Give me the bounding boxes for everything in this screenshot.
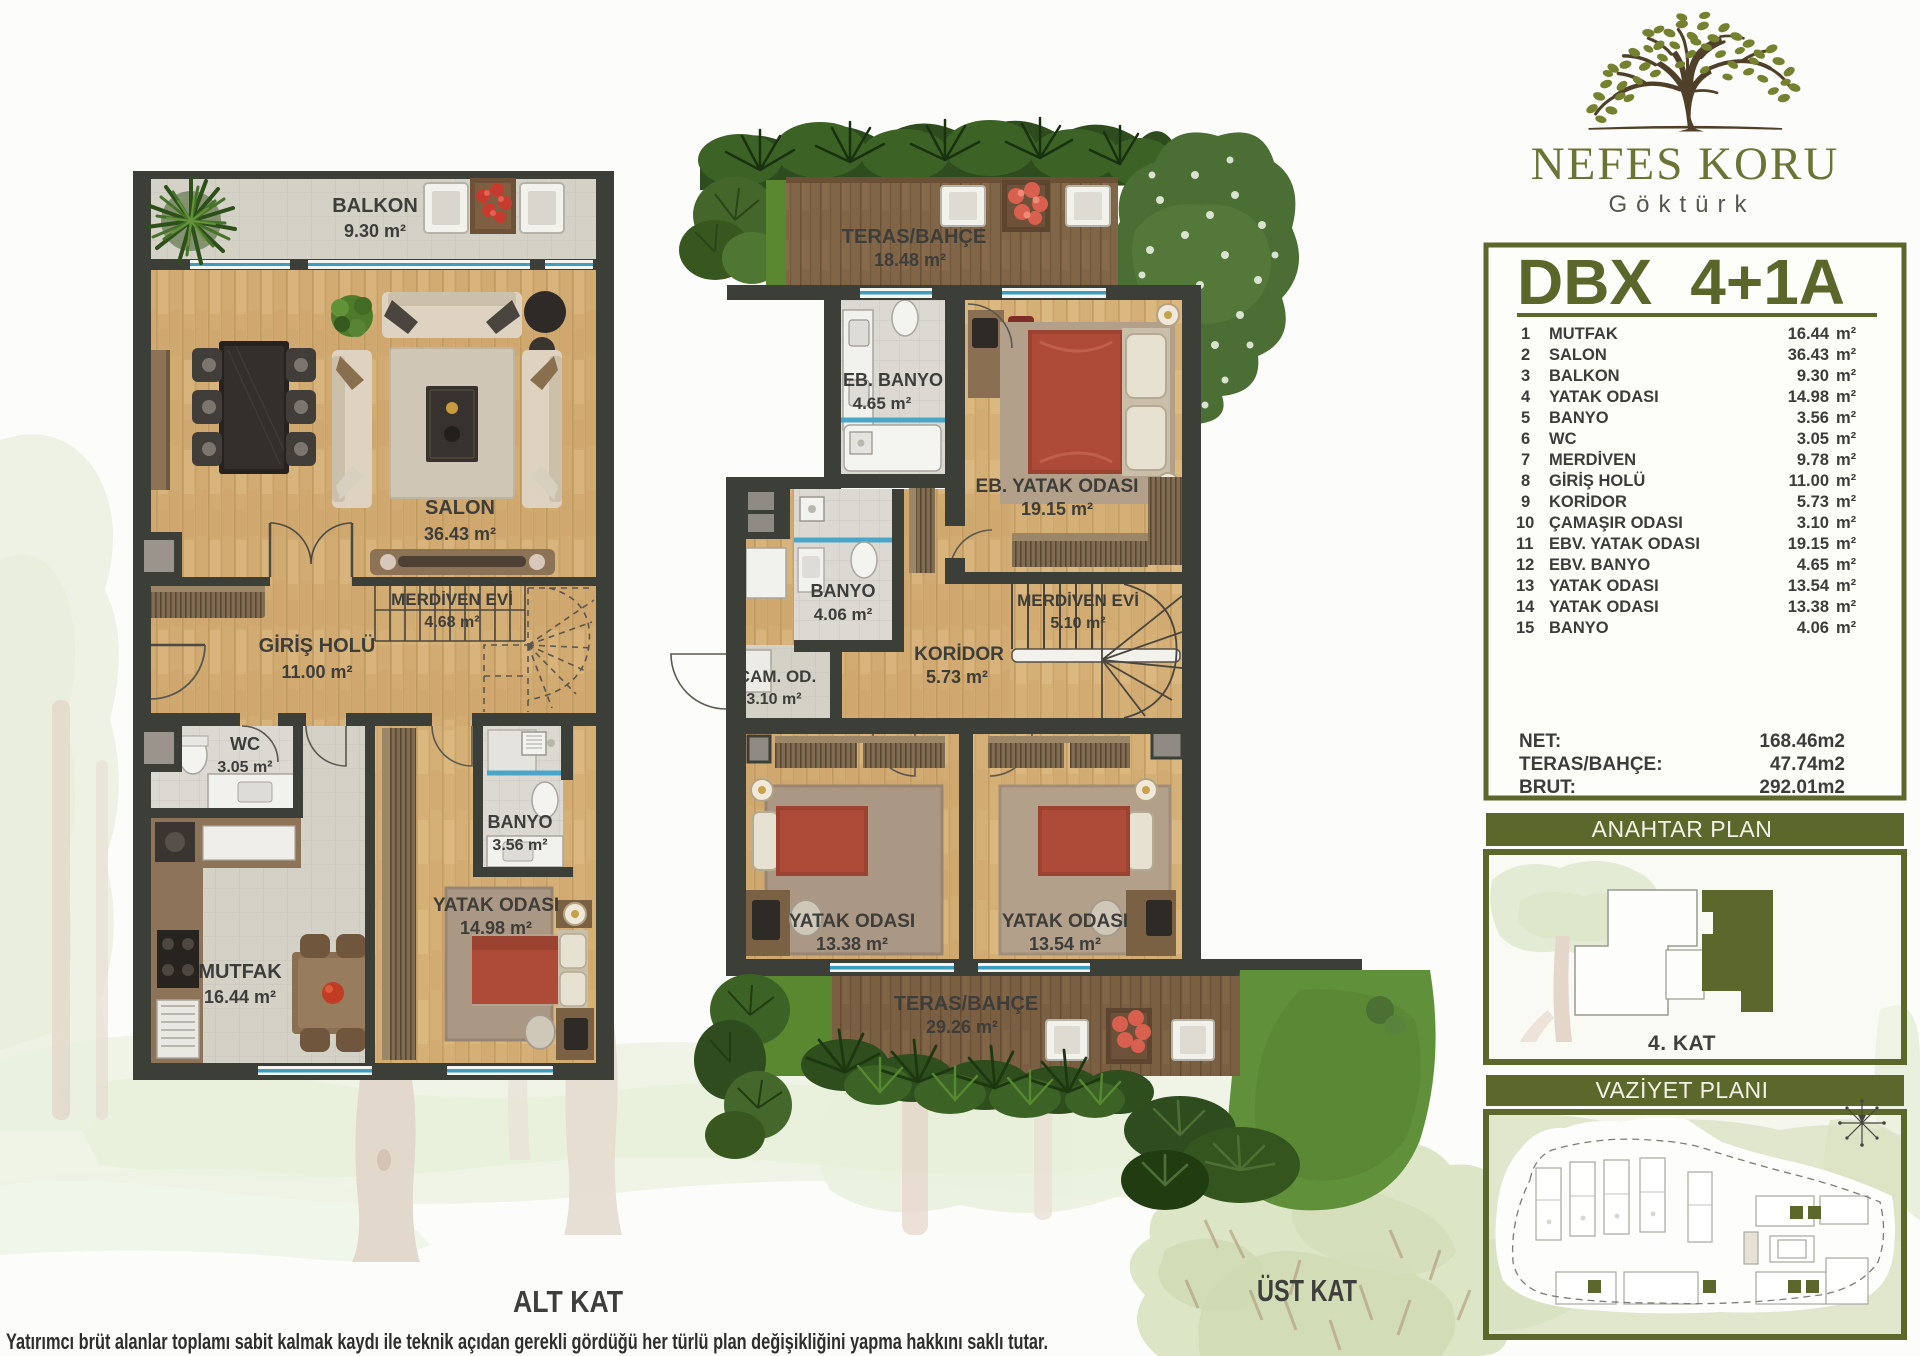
svg-text:ALT KAT: ALT KAT [513, 1284, 623, 1319]
svg-text:4.06 m²: 4.06 m² [814, 605, 873, 624]
svg-text:MUTFAK: MUTFAK [1549, 325, 1618, 343]
svg-text:Yatırımcı brüt alanlar toplamı: Yatırımcı brüt alanlar toplamı sabit kal… [6, 1329, 1048, 1354]
svg-text:YATAK ODASI: YATAK ODASI [433, 895, 559, 916]
svg-text:10: 10 [1516, 514, 1534, 532]
svg-text:SALON: SALON [1549, 346, 1607, 364]
svg-text:m²: m² [1836, 451, 1857, 469]
svg-text:BANYO: BANYO [1549, 409, 1609, 427]
svg-text:3.56 m²: 3.56 m² [492, 837, 547, 854]
svg-text:m²: m² [1836, 577, 1857, 595]
svg-text:YATAK ODASI: YATAK ODASI [1549, 577, 1659, 595]
svg-text:m²: m² [1836, 346, 1857, 364]
svg-text:2: 2 [1521, 346, 1530, 364]
svg-text:36.43 m²: 36.43 m² [424, 524, 496, 544]
svg-text:DBX: DBX [1517, 246, 1652, 318]
svg-text:m²: m² [1836, 367, 1857, 385]
svg-text:VAZİYET PLANI: VAZİYET PLANI [1595, 1077, 1768, 1103]
svg-text:19.15 m²: 19.15 m² [1021, 499, 1093, 519]
svg-text:9.78: 9.78 [1797, 451, 1829, 469]
svg-text:KORİDOR: KORİDOR [1549, 493, 1627, 511]
svg-text:ÇAM. OD.: ÇAM. OD. [738, 667, 816, 686]
svg-text:4.65: 4.65 [1797, 556, 1829, 574]
svg-text:15: 15 [1516, 619, 1534, 637]
svg-text:ANAHTAR PLAN: ANAHTAR PLAN [1592, 816, 1773, 842]
svg-text:11.00 m²: 11.00 m² [281, 662, 352, 682]
svg-text:GİRİŞ HOLÜ: GİRİŞ HOLÜ [259, 634, 376, 657]
svg-text:TERAS/BAHÇE: TERAS/BAHÇE [842, 226, 986, 248]
svg-text:BANYO: BANYO [1549, 619, 1609, 637]
svg-text:9.30 m²: 9.30 m² [344, 221, 406, 241]
svg-text:14: 14 [1516, 598, 1535, 616]
svg-text:BANYO: BANYO [487, 812, 552, 832]
svg-text:EBV. YATAK ODASI: EBV. YATAK ODASI [1549, 535, 1700, 553]
svg-text:4.06: 4.06 [1797, 619, 1829, 637]
svg-text:5: 5 [1521, 409, 1530, 427]
svg-text:13: 13 [1516, 577, 1534, 595]
svg-text:13.38: 13.38 [1788, 598, 1829, 616]
svg-text:16.44: 16.44 [1788, 325, 1830, 343]
svg-text:EB. YATAK ODASI: EB. YATAK ODASI [976, 476, 1139, 497]
svg-text:14.98: 14.98 [1788, 388, 1829, 406]
svg-text:5.10 m²: 5.10 m² [1050, 615, 1105, 632]
svg-text:16.44 m²: 16.44 m² [204, 987, 276, 1007]
svg-text:m²: m² [1836, 388, 1857, 406]
svg-text:12: 12 [1516, 556, 1534, 574]
svg-text:6: 6 [1521, 430, 1530, 448]
svg-text:168.46m2: 168.46m2 [1759, 731, 1845, 752]
svg-text:SALON: SALON [425, 497, 495, 519]
svg-text:1: 1 [1521, 325, 1530, 343]
svg-text:YATAK ODASI: YATAK ODASI [1549, 598, 1659, 616]
svg-text:TERAS/BAHÇE: TERAS/BAHÇE [894, 993, 1038, 1015]
svg-text:MERDİVEN: MERDİVEN [1549, 451, 1636, 469]
svg-text:292.01m2: 292.01m2 [1759, 777, 1845, 798]
svg-text:9: 9 [1521, 493, 1530, 511]
svg-text:BALKON: BALKON [1549, 367, 1620, 385]
svg-text:3.05 m²: 3.05 m² [217, 759, 272, 776]
svg-text:Göktürk: Göktürk [1608, 191, 1755, 218]
svg-text:BANYO: BANYO [810, 581, 875, 601]
svg-text:4.65 m²: 4.65 m² [853, 394, 912, 413]
svg-text:MUTFAK: MUTFAK [198, 961, 282, 983]
svg-text:3.56: 3.56 [1797, 409, 1829, 427]
svg-text:ÇAMAŞIR ODASI: ÇAMAŞIR ODASI [1549, 514, 1683, 532]
svg-text:m²: m² [1836, 409, 1857, 427]
svg-text:m²: m² [1836, 535, 1857, 553]
svg-text:m²: m² [1836, 325, 1857, 343]
svg-text:YATAK ODASI: YATAK ODASI [1002, 911, 1128, 932]
svg-text:4+1A: 4+1A [1690, 246, 1845, 318]
svg-text:7: 7 [1521, 451, 1530, 469]
svg-text:KORİDOR: KORİDOR [914, 644, 1004, 665]
svg-text:BRUT:: BRUT: [1519, 777, 1576, 798]
svg-text:5.73 m²: 5.73 m² [926, 667, 988, 687]
svg-text:3.05: 3.05 [1797, 430, 1829, 448]
svg-text:m²: m² [1836, 598, 1857, 616]
svg-text:EB. BANYO: EB. BANYO [843, 370, 943, 390]
svg-text:m²: m² [1836, 556, 1857, 574]
svg-text:YATAK ODASI: YATAK ODASI [789, 911, 915, 932]
svg-text:4.68 m²: 4.68 m² [424, 614, 479, 631]
svg-text:18.48 m²: 18.48 m² [874, 250, 946, 270]
svg-text:11.00: 11.00 [1789, 472, 1829, 490]
svg-text:47.74m2: 47.74m2 [1770, 754, 1845, 775]
svg-text:3.10: 3.10 [1797, 514, 1829, 532]
svg-text:19.15: 19.15 [1788, 535, 1829, 553]
svg-text:13.54: 13.54 [1788, 577, 1830, 595]
svg-text:m²: m² [1836, 430, 1857, 448]
svg-text:MERDİVEN EVİ: MERDİVEN EVİ [391, 590, 513, 609]
svg-text:TERAS/BAHÇE:: TERAS/BAHÇE: [1519, 754, 1663, 775]
svg-text:36.43: 36.43 [1788, 346, 1829, 364]
svg-text:NEFES KORU: NEFES KORU [1531, 138, 1840, 190]
svg-text:5.73: 5.73 [1797, 493, 1829, 511]
svg-text:4: 4 [1521, 388, 1531, 406]
svg-text:ÜST KAT: ÜST KAT [1257, 1273, 1357, 1308]
svg-text:YATAK ODASI: YATAK ODASI [1549, 388, 1659, 406]
svg-text:MERDİVEN EVİ: MERDİVEN EVİ [1017, 591, 1139, 610]
svg-text:m²: m² [1836, 493, 1857, 511]
svg-text:13.38 m²: 13.38 m² [816, 934, 888, 954]
svg-text:BALKON: BALKON [332, 195, 418, 217]
svg-text:29.26 m²: 29.26 m² [926, 1017, 998, 1037]
svg-text:9.30: 9.30 [1797, 367, 1829, 385]
svg-text:3: 3 [1521, 367, 1530, 385]
svg-text:m²: m² [1836, 472, 1857, 490]
svg-text:m²: m² [1836, 514, 1857, 532]
svg-text:EBV. BANYO: EBV. BANYO [1549, 556, 1650, 574]
svg-text:11: 11 [1516, 535, 1533, 553]
svg-text:4. KAT: 4. KAT [1648, 1032, 1716, 1055]
svg-text:14.98 m²: 14.98 m² [460, 918, 532, 938]
svg-text:WC: WC [1549, 430, 1577, 448]
svg-text:8: 8 [1521, 472, 1530, 490]
svg-text:WC: WC [230, 734, 260, 754]
svg-text:3.10 m²: 3.10 m² [746, 691, 801, 708]
svg-text:13.54 m²: 13.54 m² [1029, 934, 1101, 954]
svg-text:NET:: NET: [1519, 731, 1561, 752]
svg-text:m²: m² [1836, 619, 1857, 637]
svg-text:GİRİŞ HOLÜ: GİRİŞ HOLÜ [1549, 471, 1645, 490]
